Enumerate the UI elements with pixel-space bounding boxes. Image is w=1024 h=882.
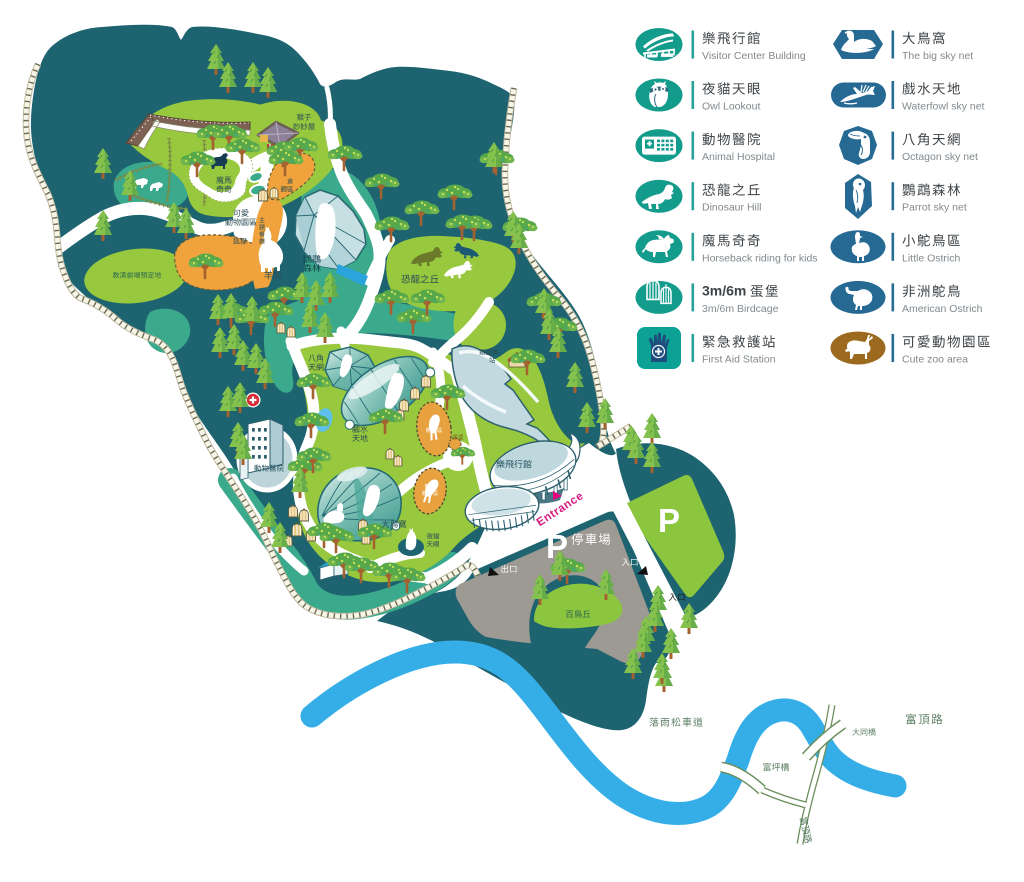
svg-text:Visitor Center Building: Visitor Center Building bbox=[702, 50, 806, 62]
svg-text:American Ostrich: American Ostrich bbox=[902, 303, 983, 315]
svg-text:Little Ostrich: Little Ostrich bbox=[902, 252, 961, 264]
svg-text:Octagon sky net: Octagon sky net bbox=[902, 151, 978, 163]
svg-text:Waterfowl sky net: Waterfowl sky net bbox=[902, 101, 985, 113]
svg-text:3m/6m: 3m/6m bbox=[702, 282, 746, 298]
svg-text:3m/6m Birdcage: 3m/6m Birdcage bbox=[702, 303, 779, 315]
svg-text:Owl Lookout: Owl Lookout bbox=[702, 101, 760, 113]
svg-text:P: P bbox=[658, 502, 680, 539]
svg-text:Parrot sky net: Parrot sky net bbox=[902, 202, 967, 214]
svg-text:Cute zoo area: Cute zoo area bbox=[902, 354, 968, 366]
svg-text:Animal Hospital: Animal Hospital bbox=[702, 151, 775, 163]
svg-text:Dinosaur Hill: Dinosaur Hill bbox=[702, 202, 762, 214]
svg-text:Horseback riding for kids: Horseback riding for kids bbox=[702, 252, 818, 264]
svg-text:The big sky net: The big sky net bbox=[902, 50, 973, 62]
svg-text:First Aid Station: First Aid Station bbox=[702, 354, 776, 366]
